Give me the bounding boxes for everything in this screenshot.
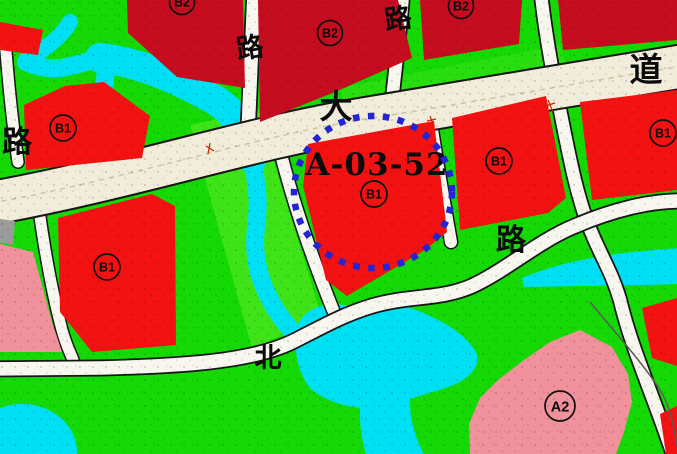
gray-patch bbox=[0, 219, 15, 245]
road-north-1 bbox=[248, 0, 254, 132]
highlight-parcel-code: A-03-52 bbox=[304, 147, 448, 183]
parcel-b1-east[interactable] bbox=[580, 90, 677, 200]
code-text: A2 bbox=[551, 400, 570, 416]
code-text: B1 bbox=[366, 188, 382, 202]
code-text: B2 bbox=[322, 27, 338, 41]
road-label-dao: 道 bbox=[630, 50, 663, 89]
parcel-b1-central[interactable] bbox=[452, 96, 566, 230]
parcel-b1-west[interactable] bbox=[58, 194, 176, 352]
code-text: B1 bbox=[55, 122, 71, 136]
road-label-lu-west: 路 bbox=[2, 125, 33, 160]
road-label-lu-east: 路 bbox=[496, 223, 527, 258]
code-text: B1 bbox=[655, 127, 671, 141]
map-viewport[interactable]: 路 路 路 大 道 路 北 朝 A-03-52 B2 B2 B2 B1 B1 B… bbox=[0, 0, 677, 454]
road-label-lu-north1: 路 bbox=[234, 30, 266, 66]
road-label-lu-north2: 路 bbox=[383, 1, 415, 37]
code-text: B1 bbox=[99, 261, 115, 275]
zoning-map[interactable]: 路 路 路 大 道 路 北 朝 A-03-52 B2 B2 B2 B1 B1 B… bbox=[0, 0, 677, 454]
code-text: B2 bbox=[174, 0, 190, 10]
road-label-partial: 朝 bbox=[0, 347, 1, 378]
code-text: B2 bbox=[453, 0, 469, 14]
road-label-da: 大 bbox=[320, 87, 353, 126]
code-text: B1 bbox=[491, 155, 507, 169]
road-label-bei: 北 bbox=[255, 343, 282, 374]
